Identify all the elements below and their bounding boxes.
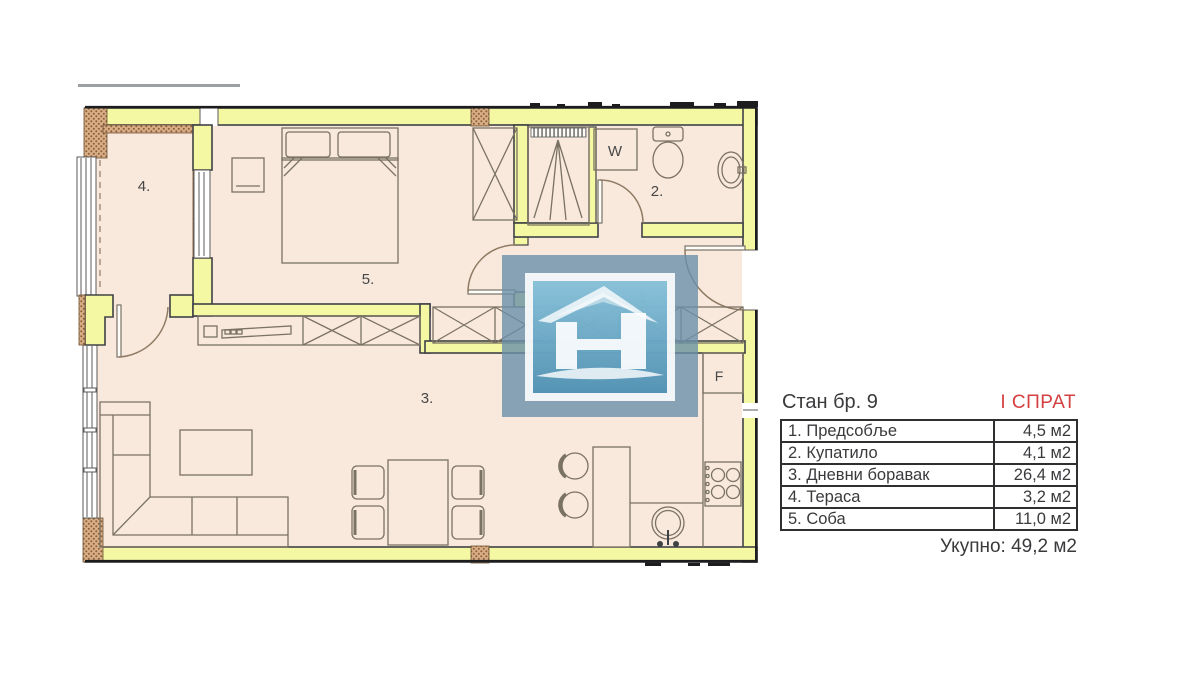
area-table: 1. Предсобље 4,5 м2 2. Купатило 4,1 м2 3… (780, 419, 1078, 531)
fridge-label: F (715, 368, 724, 384)
room-area-cell: 3,2 м2 (993, 487, 1076, 507)
room-area-cell: 11,0 м2 (993, 509, 1076, 529)
panel-header: Стан бр. 9 I СПРАТ (780, 391, 1078, 419)
floor-plan-page: { "plan": { "room_labels": { "hallway": … (0, 0, 1200, 675)
room-name-cell: 1. Предсобље (782, 421, 993, 441)
floor-badge: I СПРАТ (1000, 392, 1076, 414)
room-name-cell: 4. Тераса (782, 487, 993, 507)
room-name-cell: 3. Дневни боравак (782, 465, 993, 485)
table-row: 4. Тераса 3,2 м2 (782, 485, 1076, 507)
terrace-label: 4. (138, 178, 151, 195)
living-room-window (83, 345, 97, 518)
table-row: 5. Соба 11,0 м2 (782, 507, 1076, 529)
table-row: 1. Предсобље 4,5 м2 (782, 421, 1076, 441)
floor-plan-drawing: W (0, 0, 1200, 675)
room-area-cell: 26,4 м2 (993, 465, 1076, 485)
bathroom-label: 2. (651, 183, 664, 200)
apartment-title: Стан бр. 9 (782, 391, 878, 414)
room-area-cell: 4,5 м2 (993, 421, 1076, 441)
terrace-railing (77, 157, 96, 296)
table-row: 2. Купатило 4,1 м2 (782, 441, 1076, 463)
room-area-cell: 4,1 м2 (993, 443, 1076, 463)
apartment-info-panel: Стан бр. 9 I СПРАТ 1. Предсобље 4,5 м2 2… (780, 391, 1078, 558)
room-name-cell: 5. Соба (782, 509, 993, 529)
washing-machine-label: W (608, 143, 623, 160)
watermark-logo (502, 255, 698, 417)
terrace-glass-door (194, 170, 210, 258)
living-room-label: 3. (421, 390, 434, 407)
table-row: 3. Дневни боравак 26,4 м2 (782, 463, 1076, 485)
total-area: Укупно: 49,2 м2 (780, 531, 1078, 558)
room-name-cell: 2. Купатило (782, 443, 993, 463)
bedroom-label: 5. (362, 271, 375, 288)
kitchen-peninsula (593, 447, 630, 547)
